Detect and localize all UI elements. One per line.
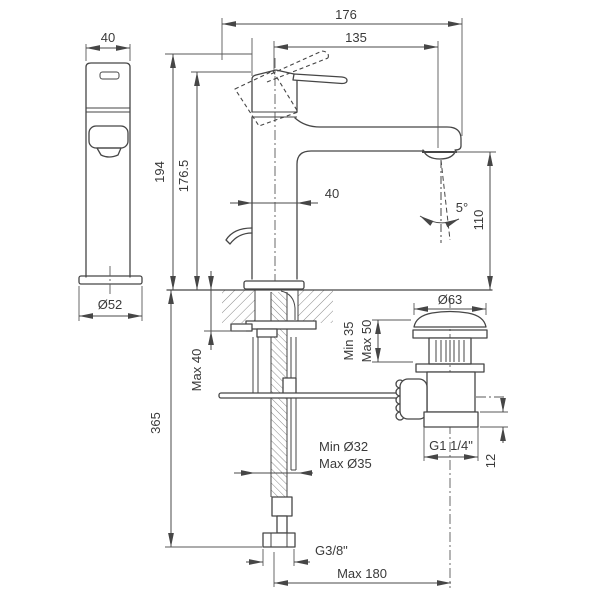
label-proj-spout: 135 — [345, 30, 367, 45]
hose-fitting-neck — [277, 516, 287, 533]
label-hole-min: Min Ø32 — [319, 439, 368, 454]
label-thread-height: 12 — [483, 454, 498, 468]
popup-horizontal-rod — [219, 393, 402, 398]
hose-hex-nut — [263, 533, 295, 547]
spout-top-edge — [295, 118, 461, 150]
popup-adjust-knurled-nut — [400, 379, 427, 419]
faucet-dimension-drawing: 40 Ø52 194 176.5 176 135 40 5° 110 Max 4… — [0, 0, 600, 600]
label-drain-thread: G1 1/4" — [429, 438, 473, 453]
label-hole-max: Max Ø35 — [319, 456, 372, 471]
label-side-base-dia: Ø52 — [98, 297, 123, 312]
label-body-width: 40 — [325, 186, 339, 201]
label-hose-thread: G3/8" — [315, 543, 348, 558]
angle-arc — [420, 216, 459, 223]
label-reach-max: Max 180 — [337, 566, 387, 581]
counter-hatch-right — [298, 290, 333, 323]
label-stream-angle: 5° — [456, 200, 468, 215]
label-proj-total: 176 — [335, 7, 357, 22]
thread-height-extension-lines — [480, 412, 508, 427]
label-drain-min: Min 35 — [341, 321, 356, 360]
height-extension-lines — [165, 18, 252, 76]
spout-underside-and-body-right-edge — [297, 151, 424, 279]
side-spout-face — [89, 126, 128, 148]
label-spout-height: 110 — [471, 210, 486, 231]
side-width-extension-lines — [86, 44, 130, 61]
side-view — [79, 44, 142, 321]
popup-rod-knob — [226, 228, 252, 244]
front-base-plate — [244, 281, 304, 289]
handle-body — [252, 70, 297, 112]
mounting-nut — [257, 329, 277, 337]
label-drain-dia: Ø63 — [438, 292, 463, 307]
label-side-width: 40 — [101, 30, 115, 45]
label-height-body: 176.5 — [176, 160, 191, 193]
handle-lever — [293, 74, 347, 84]
mounting-washer — [246, 321, 316, 329]
label-depth-below: 365 — [148, 412, 163, 434]
hose-fitting-body — [272, 497, 292, 516]
label-drain-max: Max 50 — [359, 320, 374, 363]
height-dimensions — [165, 18, 252, 290]
drain-lower-body — [427, 372, 475, 412]
popup-rod-clevis — [283, 378, 296, 394]
handle-alt-position-dashed — [235, 71, 298, 126]
counter-hatch-left — [222, 290, 255, 323]
side-base-plate — [79, 276, 142, 284]
side-joint-lines — [86, 108, 130, 112]
technical-drawing-canvas: 40 Ø52 194 176.5 176 135 40 5° 110 Max 4… — [0, 0, 600, 600]
front-view — [226, 51, 461, 289]
stream-angled-line — [441, 160, 450, 240]
side-aerator — [97, 148, 121, 157]
drain-cap-dome — [414, 312, 486, 328]
drain-tailpiece — [424, 412, 478, 427]
projection-extension-lines — [274, 18, 462, 148]
side-body-outline — [86, 63, 130, 277]
hose-thread-extension-lines — [263, 549, 294, 566]
label-counter-max: Max 40 — [189, 349, 204, 392]
mounting-bracket-tab — [231, 324, 252, 331]
side-handle-button — [100, 72, 119, 79]
label-height-total: 194 — [152, 161, 167, 183]
